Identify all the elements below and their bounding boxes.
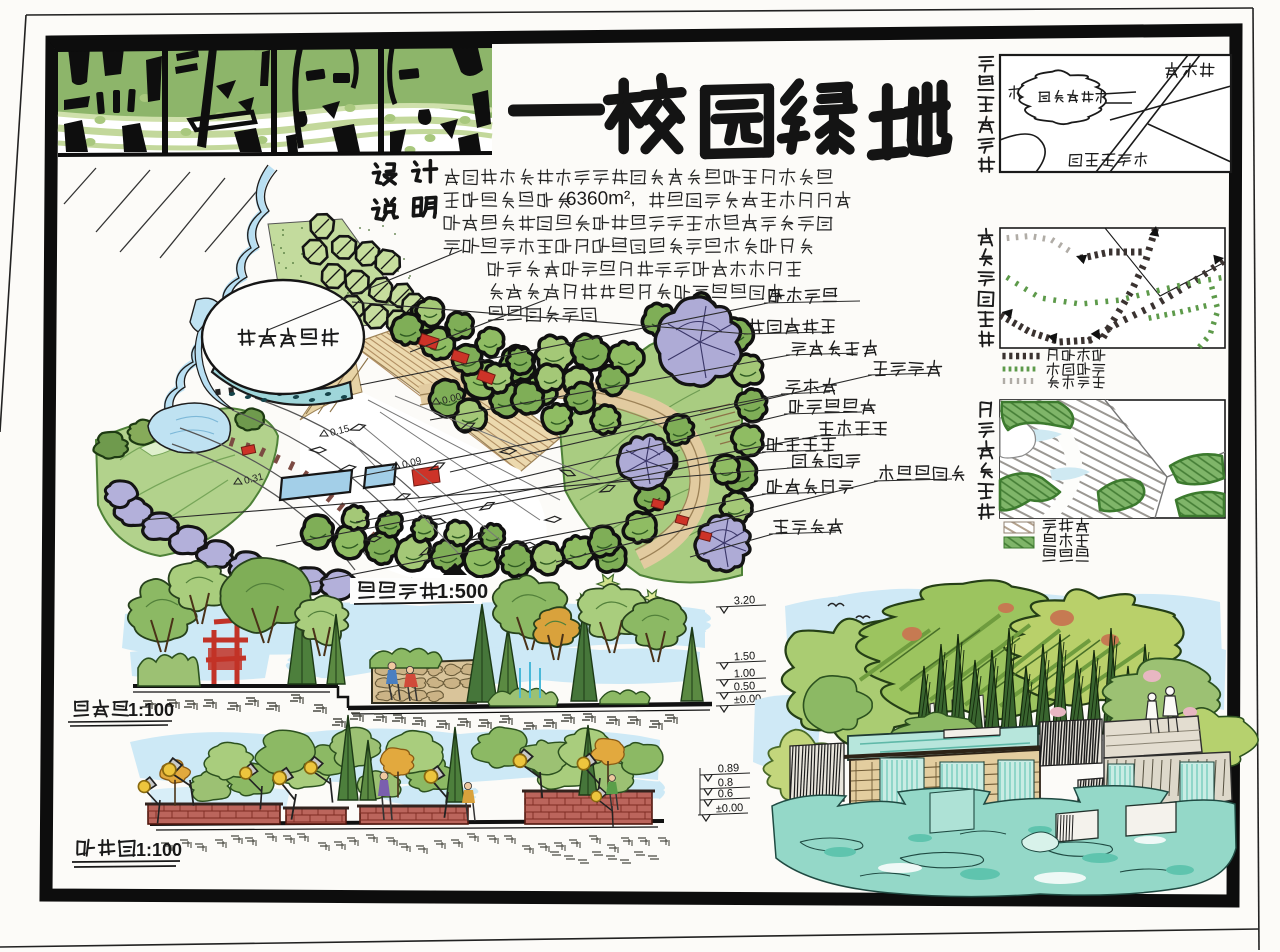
svg-text:1:500: 1:500 — [437, 581, 488, 603]
svg-text:1.50: 1.50 — [734, 650, 756, 663]
svg-text:3.20: 3.20 — [734, 594, 756, 607]
svg-text:0.89: 0.89 — [718, 762, 740, 775]
svg-text:1:100: 1:100 — [128, 700, 174, 720]
svg-text:6360m²,: 6360m², — [566, 188, 636, 210]
svg-text:±0.00: ±0.00 — [716, 802, 744, 815]
svg-text:0.6: 0.6 — [718, 788, 734, 801]
svg-text:1.00: 1.00 — [734, 667, 756, 680]
svg-text:0.50: 0.50 — [734, 680, 756, 693]
svg-text:1:100: 1:100 — [136, 840, 182, 860]
